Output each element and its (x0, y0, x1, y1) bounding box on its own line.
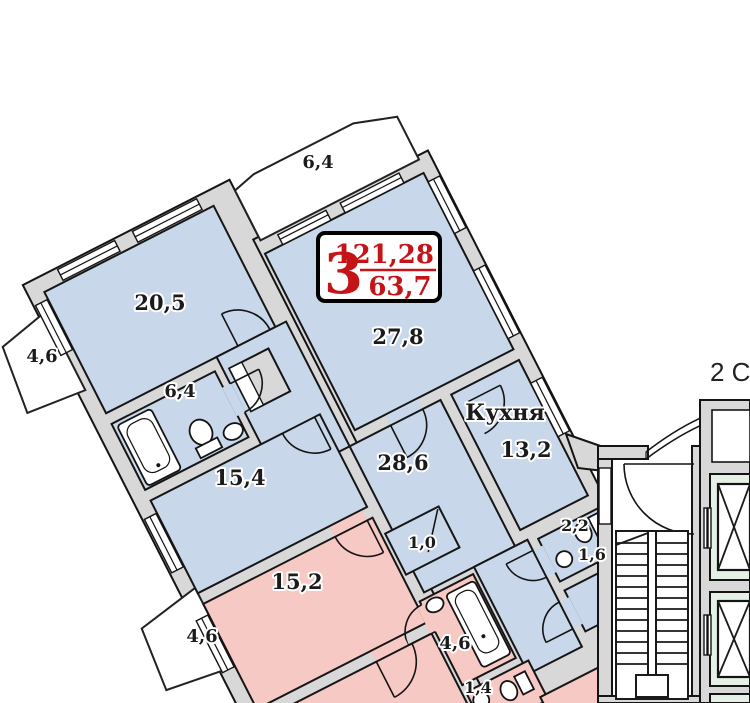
apartment-entry-opening (599, 468, 611, 524)
elevator-column (700, 400, 750, 703)
label-bathroom-6-4: 6,4 (164, 381, 195, 402)
label-wc-2-2: 2,2 (561, 516, 589, 535)
label-room-27-8: 27,8 (372, 324, 423, 349)
label-pink-wc-1-4: 1,4 (464, 678, 492, 697)
floor-plan-svg: 3 121,28 63,7 20,5 6,4 4,6 6,4 27,8 Кухн… (0, 0, 750, 703)
elevator-lobby (712, 410, 750, 462)
core-wall-top (598, 446, 648, 459)
stairs (616, 531, 688, 699)
apartment-block (0, 94, 698, 703)
apartment-stamp: 3 121,28 63,7 (318, 233, 440, 307)
label-balcony-4-6-left: 4,6 (26, 346, 57, 367)
label-pink-bath-4-6: 4,6 (439, 633, 470, 654)
label-balcony-6-4: 6,4 (302, 152, 333, 173)
label-room-15-4: 15,4 (214, 465, 265, 490)
label-room-20-5: 20,5 (134, 290, 185, 315)
section-label: 2 С (710, 357, 750, 387)
elevator-1 (704, 474, 750, 580)
label-room-15-2: 15,2 (271, 569, 322, 594)
stamp-living-area: 63,7 (368, 272, 431, 302)
label-pantry-1-6: 1,6 (578, 545, 606, 564)
label-closet-1-0: 1,0 (408, 533, 436, 552)
label-balcony-4-6-bottom: 4,6 (186, 626, 217, 647)
label-hall-28-6: 28,6 (377, 450, 428, 475)
label-kitchen-name: Кухня (465, 400, 545, 426)
elevator-2 (704, 592, 750, 686)
floor-plan-page: 3 121,28 63,7 20,5 6,4 4,6 6,4 27,8 Кухн… (0, 0, 750, 703)
label-kitchen-area: 13,2 (500, 437, 551, 462)
elevator-shaft-bottom (710, 694, 750, 703)
stamp-total-area: 121,28 (334, 240, 434, 270)
